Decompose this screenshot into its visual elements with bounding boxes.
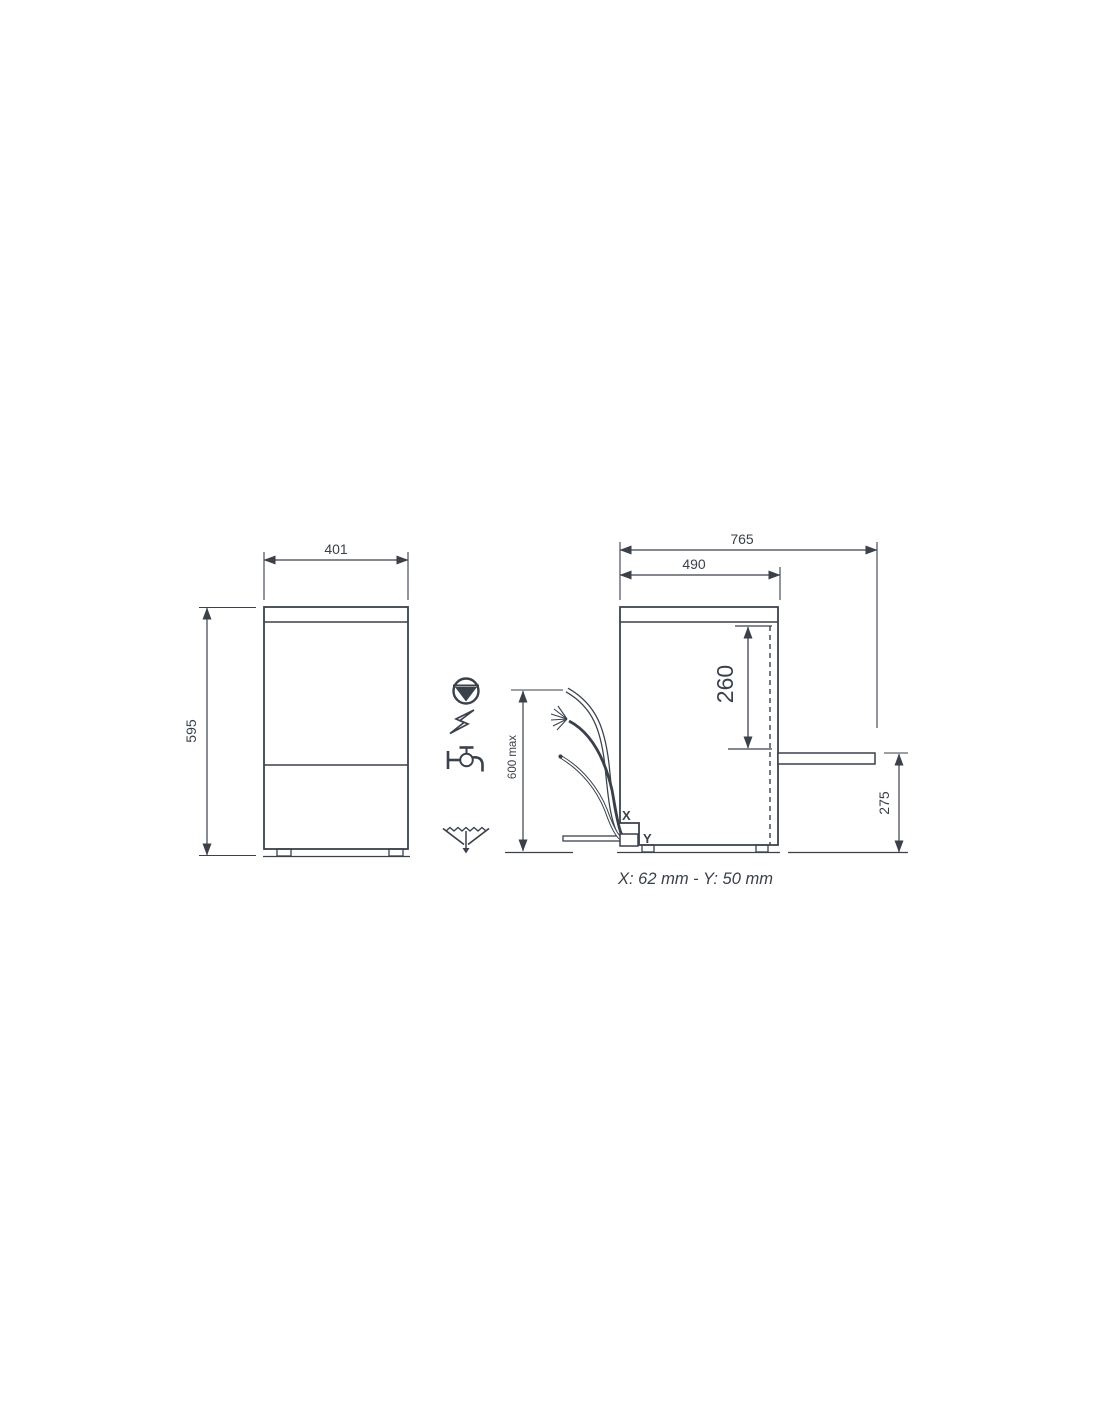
drawing-canvas: 401 595	[0, 0, 1100, 1422]
drain-outlet-pipe	[778, 753, 875, 764]
front-body	[264, 607, 408, 849]
front-height-label: 595	[183, 719, 199, 743]
side-foot-right	[756, 845, 768, 852]
front-view	[263, 607, 410, 857]
inlet-hose-cap	[558, 754, 562, 758]
water-tap-icon	[448, 748, 483, 772]
side-body	[620, 607, 778, 845]
utility-icons	[443, 679, 489, 854]
hose-length-label: 600 max	[507, 735, 519, 779]
hose-length-dimension: 600 max	[507, 690, 563, 851]
body-depth-dimension: 490	[620, 556, 780, 600]
front-width-dimension: 401	[264, 541, 408, 600]
pump-icon	[453, 679, 479, 704]
side-foot-left	[642, 845, 654, 852]
body-depth-label: 490	[682, 556, 706, 572]
front-foot-right	[389, 849, 403, 856]
outlet-height-dimension: 275	[876, 753, 908, 852]
side-view	[505, 607, 908, 853]
connection-y-label: Y	[643, 831, 652, 846]
drain-icon	[443, 828, 489, 854]
total-depth-label: 765	[730, 531, 754, 547]
front-width-label: 401	[324, 541, 348, 557]
power-cable-frayed-end	[551, 706, 567, 730]
connection-x-label: X	[622, 808, 631, 823]
connection-box	[620, 834, 638, 846]
drain-height-label: 260	[712, 665, 738, 703]
front-foot-left	[277, 849, 291, 856]
connection-dimensions-note: X: 62 mm - Y: 50 mm	[617, 870, 773, 888]
outlet-height-label: 275	[876, 791, 892, 815]
technical-drawing: 401 595	[0, 0, 1100, 1422]
electric-bolt-icon	[450, 710, 474, 734]
floor-hose-pipe	[563, 836, 620, 841]
front-height-dimension: 595	[183, 608, 256, 856]
